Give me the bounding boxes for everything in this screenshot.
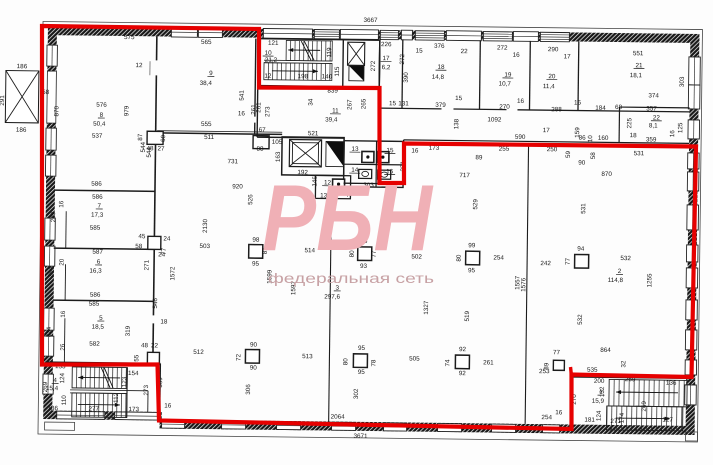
svg-text:870: 870 bbox=[53, 105, 60, 116]
svg-text:2130: 2130 bbox=[202, 218, 209, 233]
svg-text:12: 12 bbox=[264, 73, 272, 80]
svg-text:291: 291 bbox=[0, 95, 6, 106]
svg-text:272: 272 bbox=[370, 60, 377, 71]
svg-text:359: 359 bbox=[646, 136, 657, 143]
svg-text:277: 277 bbox=[88, 406, 99, 413]
svg-text:32: 32 bbox=[620, 360, 627, 368]
svg-text:10,7: 10,7 bbox=[499, 81, 512, 88]
svg-text:24: 24 bbox=[163, 235, 171, 242]
svg-text:267: 267 bbox=[346, 99, 353, 110]
svg-text:376: 376 bbox=[434, 43, 445, 50]
svg-text:271: 271 bbox=[143, 259, 150, 270]
svg-text:511: 511 bbox=[204, 134, 215, 141]
svg-text:590: 590 bbox=[515, 134, 526, 141]
svg-text:105: 105 bbox=[272, 139, 283, 146]
svg-text:22: 22 bbox=[461, 48, 469, 55]
svg-text:39,4: 39,4 bbox=[325, 116, 338, 123]
svg-text:303: 303 bbox=[679, 76, 686, 87]
svg-text:6,2: 6,2 bbox=[382, 64, 391, 71]
svg-text:90: 90 bbox=[250, 342, 258, 349]
svg-text:60: 60 bbox=[160, 134, 167, 142]
svg-text:512: 512 bbox=[193, 349, 204, 356]
svg-text:127: 127 bbox=[662, 417, 673, 424]
svg-text:154: 154 bbox=[128, 370, 139, 377]
svg-text:582: 582 bbox=[89, 341, 100, 348]
svg-text:89: 89 bbox=[543, 362, 550, 370]
svg-text:297,6: 297,6 bbox=[324, 293, 340, 300]
svg-text:110: 110 bbox=[61, 395, 68, 406]
svg-text:8,1: 8,1 bbox=[649, 122, 658, 129]
svg-text:114,8: 114,8 bbox=[608, 277, 624, 284]
svg-text:10: 10 bbox=[587, 135, 594, 143]
svg-text:870: 870 bbox=[601, 171, 612, 178]
svg-text:585: 585 bbox=[90, 225, 101, 232]
svg-text:20: 20 bbox=[59, 258, 66, 266]
svg-text:537: 537 bbox=[92, 133, 103, 140]
svg-text:16: 16 bbox=[164, 403, 172, 410]
svg-text:1255: 1255 bbox=[646, 273, 653, 288]
svg-text:379: 379 bbox=[435, 102, 446, 109]
svg-text:131: 131 bbox=[398, 100, 409, 107]
svg-text:551: 551 bbox=[633, 50, 644, 57]
svg-text:92: 92 bbox=[459, 370, 467, 377]
svg-text:288: 288 bbox=[551, 106, 562, 113]
svg-text:357: 357 bbox=[646, 105, 657, 112]
svg-text:181: 181 bbox=[584, 417, 595, 424]
svg-text:17: 17 bbox=[564, 53, 572, 60]
svg-text:270: 270 bbox=[499, 104, 510, 111]
svg-text:99: 99 bbox=[468, 242, 476, 249]
svg-text:717: 717 bbox=[459, 172, 470, 179]
svg-text:225: 225 bbox=[626, 117, 633, 128]
svg-text:95: 95 bbox=[358, 345, 366, 352]
svg-text:16: 16 bbox=[58, 200, 65, 208]
svg-text:250: 250 bbox=[547, 146, 558, 153]
svg-text:16: 16 bbox=[517, 98, 525, 105]
svg-text:390: 390 bbox=[403, 72, 410, 83]
svg-text:269: 269 bbox=[42, 381, 49, 392]
svg-text:160: 160 bbox=[598, 135, 609, 142]
svg-text:306: 306 bbox=[245, 384, 252, 395]
svg-text:1576: 1576 bbox=[520, 277, 527, 292]
svg-text:121: 121 bbox=[268, 40, 279, 47]
svg-text:3671: 3671 bbox=[353, 433, 368, 440]
svg-text:115: 115 bbox=[334, 66, 341, 77]
svg-text:138: 138 bbox=[453, 118, 460, 129]
svg-text:585: 585 bbox=[89, 301, 100, 308]
svg-text:290: 290 bbox=[548, 46, 559, 53]
svg-text:505: 505 bbox=[409, 355, 420, 362]
svg-text:269: 269 bbox=[641, 401, 648, 412]
svg-text:16: 16 bbox=[574, 99, 582, 106]
svg-text:80: 80 bbox=[342, 358, 349, 366]
svg-text:302: 302 bbox=[353, 388, 360, 399]
svg-text:136: 136 bbox=[47, 405, 58, 412]
svg-text:90: 90 bbox=[250, 365, 258, 372]
svg-text:88: 88 bbox=[256, 146, 264, 153]
svg-text:261: 261 bbox=[255, 102, 262, 113]
svg-text:519: 519 bbox=[464, 310, 471, 321]
svg-text:125: 125 bbox=[677, 122, 684, 133]
svg-text:2064: 2064 bbox=[331, 414, 346, 421]
svg-text:95: 95 bbox=[468, 267, 476, 274]
svg-text:920: 920 bbox=[232, 183, 243, 190]
svg-text:80: 80 bbox=[456, 254, 463, 262]
svg-text:78: 78 bbox=[370, 359, 377, 367]
svg-text:576: 576 bbox=[96, 102, 107, 109]
svg-text:27: 27 bbox=[157, 145, 165, 152]
svg-text:254: 254 bbox=[541, 414, 552, 421]
svg-text:16,3: 16,3 bbox=[89, 268, 102, 275]
svg-text:15: 15 bbox=[416, 48, 424, 55]
svg-text:272: 272 bbox=[399, 54, 406, 65]
svg-text:3667: 3667 bbox=[364, 17, 379, 24]
svg-text:15: 15 bbox=[455, 95, 463, 102]
svg-text:21,2: 21,2 bbox=[265, 57, 278, 64]
svg-text:324: 324 bbox=[46, 326, 53, 337]
svg-text:173: 173 bbox=[128, 406, 139, 413]
svg-text:546: 546 bbox=[152, 298, 159, 309]
svg-text:15: 15 bbox=[389, 100, 397, 107]
svg-text:45: 45 bbox=[138, 233, 146, 240]
svg-text:48: 48 bbox=[141, 342, 149, 349]
svg-text:77: 77 bbox=[553, 349, 561, 356]
svg-text:273: 273 bbox=[264, 106, 271, 117]
svg-text:14,8: 14,8 bbox=[432, 74, 445, 81]
svg-text:374: 374 bbox=[648, 92, 659, 99]
svg-text:586: 586 bbox=[92, 194, 103, 201]
svg-text:119: 119 bbox=[326, 47, 333, 58]
svg-text:513: 513 bbox=[302, 353, 313, 360]
svg-text:95: 95 bbox=[252, 261, 260, 268]
svg-text:22: 22 bbox=[151, 342, 159, 349]
svg-text:265: 265 bbox=[360, 98, 367, 109]
svg-text:95: 95 bbox=[358, 369, 366, 376]
svg-text:18,5: 18,5 bbox=[92, 324, 105, 331]
svg-text:59: 59 bbox=[565, 150, 572, 158]
svg-text:77: 77 bbox=[565, 257, 572, 265]
svg-text:98: 98 bbox=[252, 237, 260, 244]
svg-text:87: 87 bbox=[137, 133, 144, 141]
svg-text:226: 226 bbox=[381, 41, 392, 48]
svg-text:24: 24 bbox=[158, 251, 166, 258]
svg-text:17,3: 17,3 bbox=[91, 212, 104, 219]
svg-text:16: 16 bbox=[669, 130, 676, 138]
svg-text:261: 261 bbox=[483, 359, 494, 366]
svg-text:58: 58 bbox=[590, 152, 597, 160]
svg-text:299: 299 bbox=[50, 211, 57, 222]
svg-text:1327: 1327 bbox=[423, 300, 430, 315]
svg-text:12: 12 bbox=[135, 62, 143, 69]
svg-text:565: 565 bbox=[201, 39, 212, 46]
svg-text:532: 532 bbox=[620, 255, 631, 262]
svg-text:92: 92 bbox=[459, 346, 467, 353]
svg-text:федеральная сеть: федеральная сеть bbox=[268, 270, 434, 286]
svg-text:532: 532 bbox=[577, 314, 584, 325]
svg-text:50,4: 50,4 bbox=[93, 121, 106, 128]
svg-text:124: 124 bbox=[596, 410, 603, 421]
svg-text:58: 58 bbox=[135, 243, 143, 250]
svg-text:979: 979 bbox=[123, 105, 130, 116]
svg-text:575: 575 bbox=[124, 34, 135, 41]
svg-text:864: 864 bbox=[600, 347, 611, 354]
svg-text:136: 136 bbox=[666, 380, 677, 387]
svg-text:529: 529 bbox=[472, 199, 479, 210]
svg-text:586: 586 bbox=[90, 292, 101, 299]
svg-text:94: 94 bbox=[577, 246, 585, 253]
svg-text:503: 503 bbox=[199, 243, 210, 250]
svg-text:124: 124 bbox=[59, 372, 66, 383]
svg-text:16: 16 bbox=[60, 310, 67, 318]
svg-text:18: 18 bbox=[630, 132, 638, 139]
svg-text:555: 555 bbox=[201, 121, 212, 128]
svg-text:163: 163 bbox=[275, 151, 282, 162]
svg-text:15,9: 15,9 bbox=[592, 398, 605, 405]
svg-text:186: 186 bbox=[16, 127, 27, 134]
svg-text:200: 200 bbox=[594, 378, 605, 385]
svg-text:731: 731 bbox=[228, 158, 239, 165]
svg-text:90: 90 bbox=[578, 160, 586, 167]
svg-text:140: 140 bbox=[322, 73, 333, 80]
svg-text:17: 17 bbox=[543, 127, 551, 134]
svg-text:159: 159 bbox=[574, 127, 581, 138]
svg-text:68: 68 bbox=[615, 104, 623, 111]
svg-text:1092: 1092 bbox=[487, 116, 502, 123]
svg-text:242: 242 bbox=[540, 260, 551, 267]
svg-text:273: 273 bbox=[143, 384, 150, 395]
svg-text:89: 89 bbox=[475, 154, 483, 161]
svg-text:272: 272 bbox=[497, 45, 508, 52]
svg-text:284: 284 bbox=[47, 266, 54, 277]
svg-text:535: 535 bbox=[587, 367, 598, 374]
svg-text:198: 198 bbox=[298, 73, 309, 80]
svg-text:48: 48 bbox=[146, 145, 154, 152]
svg-text:1572: 1572 bbox=[169, 266, 176, 281]
svg-text:123: 123 bbox=[121, 376, 128, 387]
svg-text:72: 72 bbox=[235, 353, 242, 361]
svg-text:11,4: 11,4 bbox=[543, 83, 555, 90]
svg-text:186: 186 bbox=[17, 63, 28, 70]
svg-text:РБН: РБН bbox=[262, 165, 434, 270]
svg-text:16: 16 bbox=[411, 148, 419, 155]
svg-text:26: 26 bbox=[60, 343, 67, 351]
svg-text:531: 531 bbox=[580, 203, 587, 214]
svg-text:587: 587 bbox=[92, 249, 103, 256]
svg-text:521: 521 bbox=[308, 130, 319, 137]
svg-text:55: 55 bbox=[133, 354, 140, 362]
svg-text:586: 586 bbox=[91, 181, 102, 188]
svg-text:74: 74 bbox=[444, 359, 451, 367]
svg-text:112: 112 bbox=[113, 392, 120, 403]
svg-text:271: 271 bbox=[610, 418, 621, 425]
svg-text:18,1: 18,1 bbox=[630, 72, 643, 79]
svg-text:34: 34 bbox=[308, 98, 315, 106]
svg-text:541: 541 bbox=[239, 90, 246, 101]
svg-text:184: 184 bbox=[595, 105, 606, 112]
svg-text:319: 319 bbox=[125, 325, 132, 336]
svg-text:526: 526 bbox=[247, 194, 254, 205]
svg-text:38,4: 38,4 bbox=[200, 80, 213, 87]
svg-text:254: 254 bbox=[493, 255, 504, 262]
svg-text:16: 16 bbox=[555, 409, 563, 416]
svg-text:18: 18 bbox=[160, 318, 168, 325]
svg-text:67: 67 bbox=[259, 127, 267, 134]
svg-text:531: 531 bbox=[634, 150, 645, 157]
svg-text:16: 16 bbox=[513, 52, 521, 59]
svg-text:16: 16 bbox=[238, 110, 246, 117]
